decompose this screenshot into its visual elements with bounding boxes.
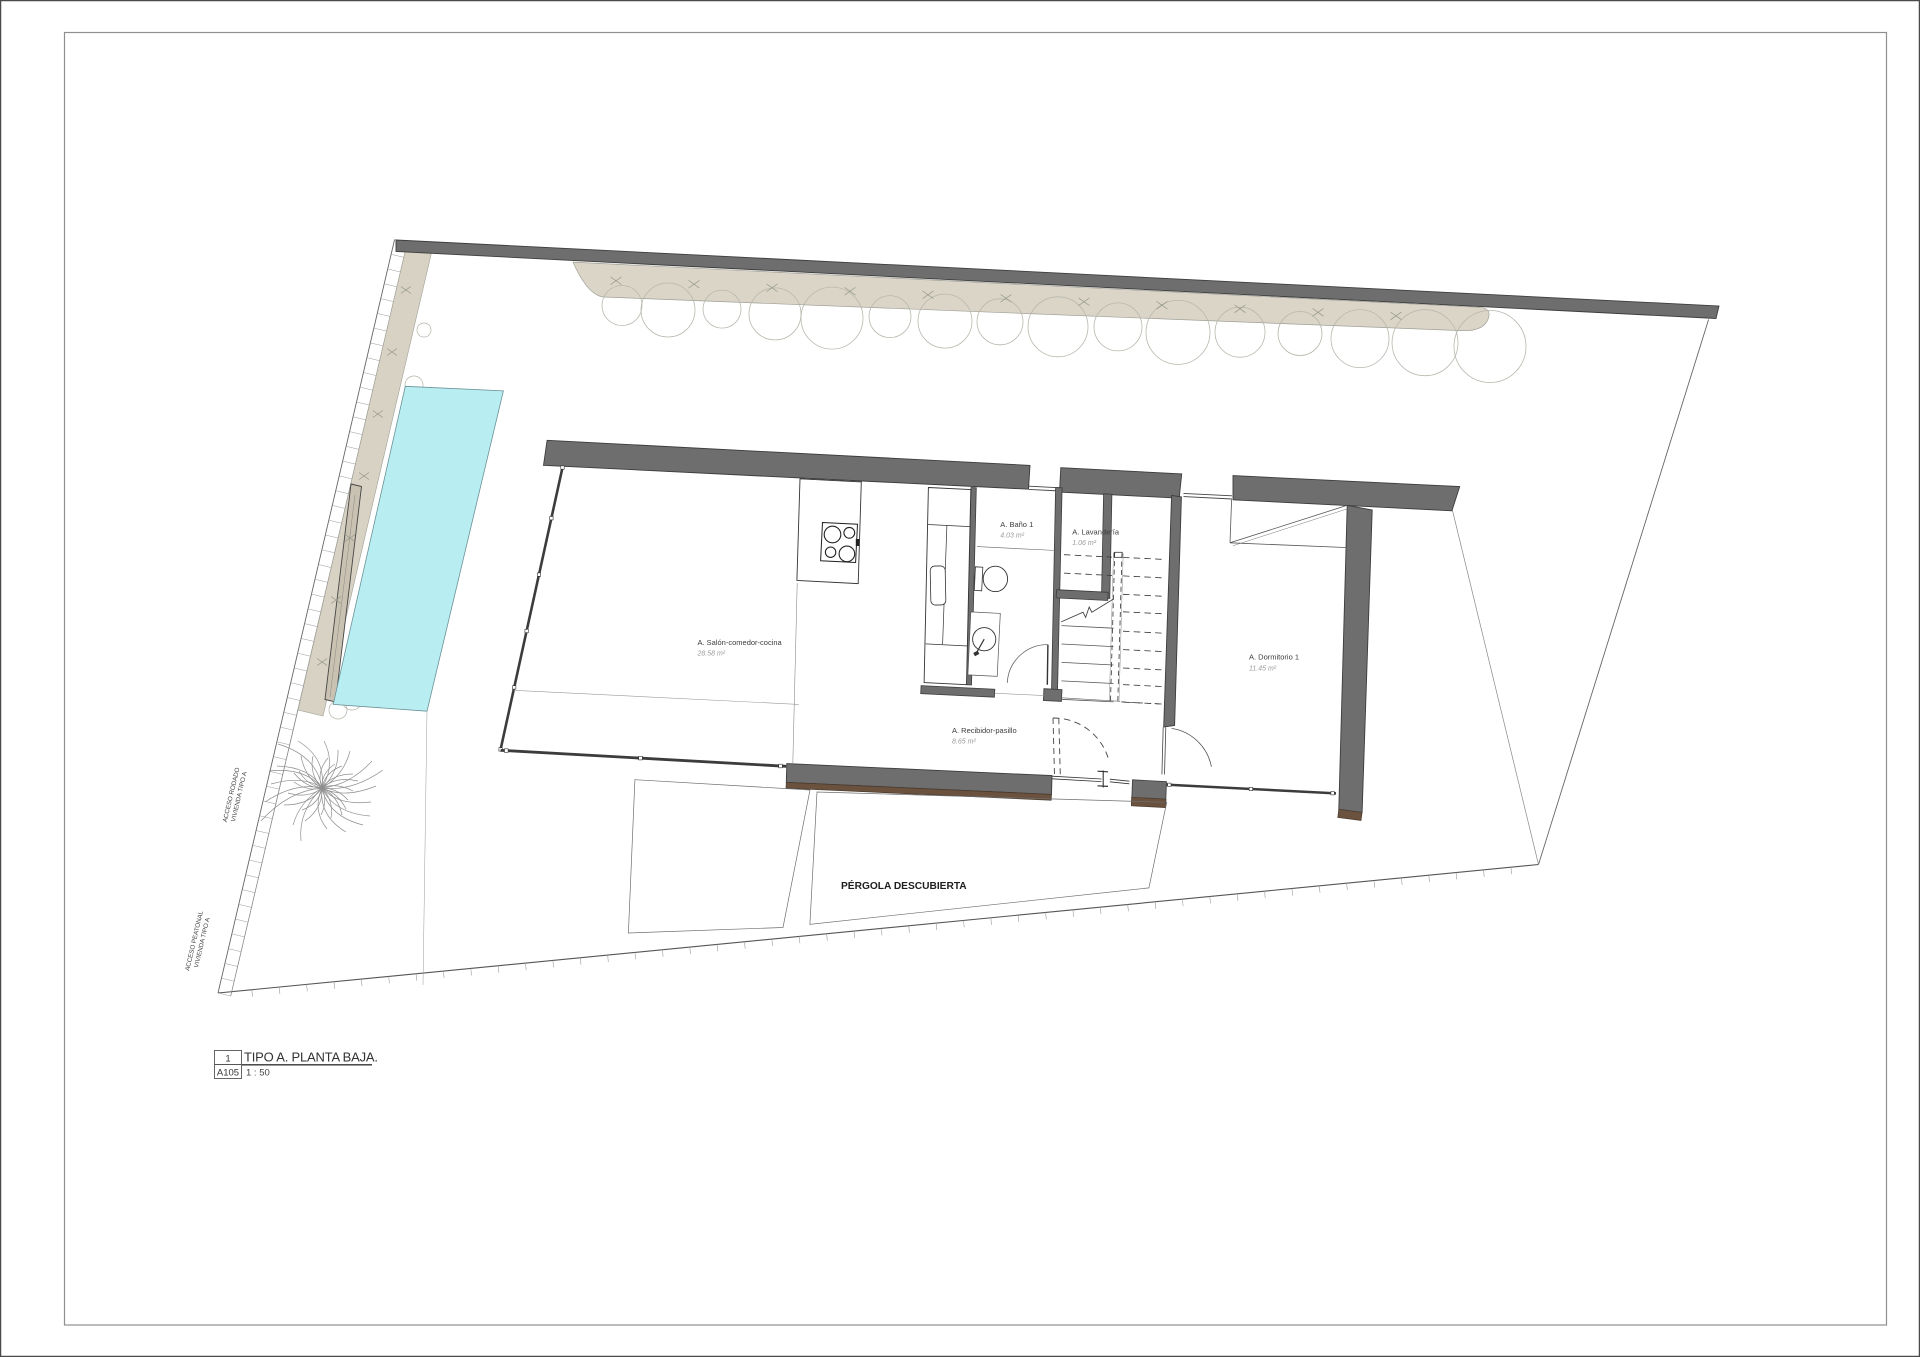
svg-text:A. Salón-comedor-cocina: A. Salón-comedor-cocina — [698, 638, 783, 647]
svg-text:1 : 50: 1 : 50 — [246, 1068, 270, 1079]
svg-text:TIPO A. PLANTA BAJA.: TIPO A. PLANTA BAJA. — [244, 1050, 378, 1065]
svg-text:PÉRGOLA DESCUBIERTA: PÉRGOLA DESCUBIERTA — [841, 879, 967, 892]
svg-text:A. Lavandería: A. Lavandería — [1072, 528, 1120, 537]
svg-text:8.65 m²: 8.65 m² — [952, 739, 976, 746]
svg-text:28.58 m²: 28.58 m² — [697, 651, 726, 658]
svg-text:A. Recibidor-pasillo: A. Recibidor-pasillo — [952, 726, 1017, 735]
svg-text:A105: A105 — [217, 1068, 239, 1079]
svg-text:4.03 m²: 4.03 m² — [1000, 533, 1024, 540]
svg-text:A. Baño 1: A. Baño 1 — [1000, 520, 1033, 529]
svg-text:1.06 m²: 1.06 m² — [1072, 540, 1096, 547]
svg-text:A. Dormitorio 1: A. Dormitorio 1 — [1249, 653, 1299, 662]
svg-text:11.45 m²: 11.45 m² — [1249, 666, 1277, 673]
svg-text:1: 1 — [225, 1054, 230, 1065]
